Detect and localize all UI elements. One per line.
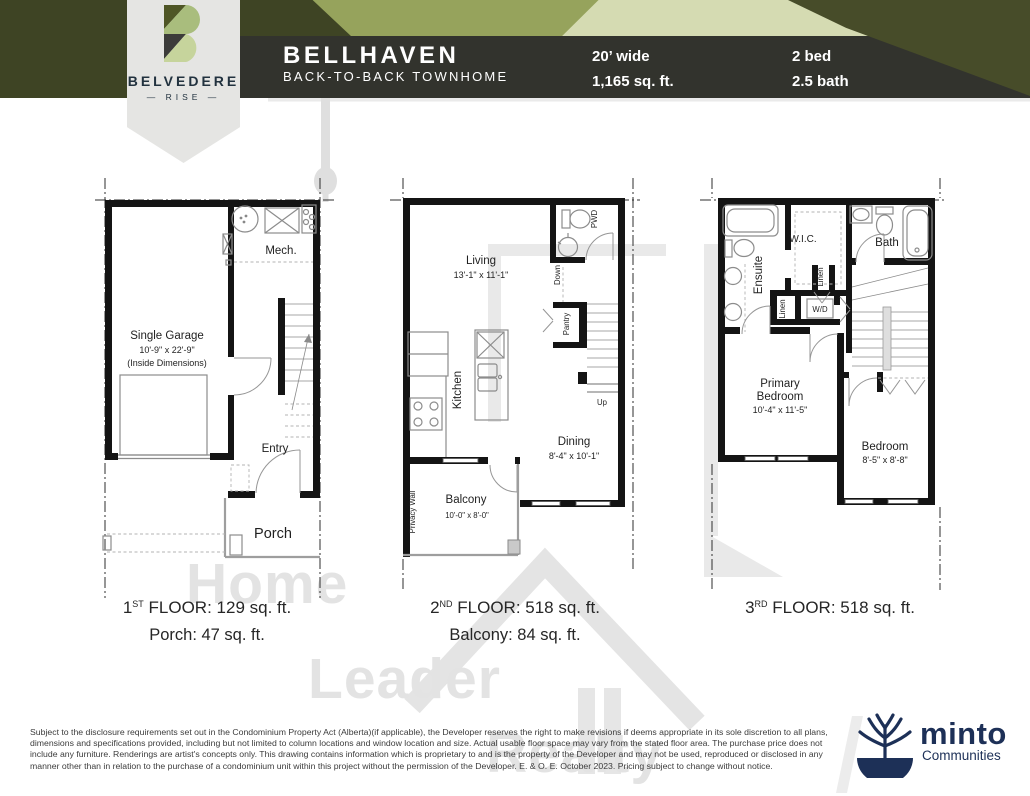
primary-bedroom-label-2: Bedroom — [757, 391, 804, 403]
kitchen-window — [443, 459, 478, 463]
bath-label: Bath — [875, 237, 899, 249]
pwd-door — [586, 233, 613, 260]
bath-fixtures — [850, 206, 932, 260]
ensuite-door — [742, 306, 770, 334]
garage-label: Single Garage — [130, 330, 204, 342]
living-dims: 13'-1" x 11'-1" — [454, 270, 509, 280]
minto-tree-icon — [853, 712, 917, 778]
bedroom-dims: 8'-5" x 8'-8" — [862, 455, 907, 465]
entry-closet — [231, 465, 249, 491]
ensuite-label: Ensuite — [753, 256, 765, 294]
balcony-dims: 10'-0" x 8'-0" — [445, 511, 489, 520]
minto-logo: minto Communities — [853, 712, 917, 783]
pantry-door — [543, 309, 553, 332]
floor1-area-label: 1ST FLOOR: 129 sq. ft. — [82, 598, 332, 618]
water-heater-icon — [232, 206, 258, 232]
linen-label-1: Linen — [816, 267, 825, 286]
garage-interior-door — [234, 358, 271, 395]
minto-name: minto — [920, 716, 1007, 752]
balcony-label: Balcony — [446, 494, 487, 506]
floor1-plan: Mech. Single Garage 10'-9" x 22'-9" (Ins… — [95, 172, 335, 602]
toilet-icon — [725, 240, 732, 257]
garage-dims: 10'-9" x 22'-9" — [139, 345, 194, 355]
bedroom-closet — [878, 378, 928, 394]
floor1-porch-label: Porch: 47 sq. ft. — [82, 626, 332, 645]
primary-door — [810, 334, 838, 362]
floor2-plan: Living 13'-1" x 11'-1" PWD Down Pantry K… — [390, 172, 640, 602]
floor3-area-label: 3RD FLOOR: 518 sq. ft. — [705, 598, 955, 618]
stairs-floor1 — [278, 298, 313, 437]
wd-label: W/D — [812, 305, 828, 314]
dining-dims: 8'-4" x 10'-1" — [549, 451, 599, 461]
primary-bedroom-label-1: Primary — [760, 378, 800, 390]
floor3-plan: Ensuite W.I.C. Bath Linen Linen W/D Prim… — [700, 172, 945, 602]
toilet-icon — [876, 207, 893, 214]
sink-icon — [725, 304, 742, 321]
sink-icon — [725, 268, 742, 285]
balcony-door — [490, 465, 517, 492]
entry-label: Entry — [262, 443, 289, 455]
floorplan-brochure: Home Leader Realty BELLHAVEN BACK-TO-BAC… — [0, 0, 1030, 796]
stair-arrow — [304, 334, 312, 343]
stair-rail — [883, 307, 891, 370]
porch-post — [230, 535, 242, 555]
up-label: Up — [597, 398, 608, 407]
balcony-outline — [403, 464, 520, 555]
mech-label: Mech. — [265, 245, 296, 257]
legal-disclaimer: Subject to the disclosure requirements s… — [30, 727, 832, 772]
front-door — [256, 450, 300, 493]
watermark-strip — [268, 98, 1030, 102]
driveway-lines — [107, 534, 225, 552]
stairs-floor2 — [587, 304, 618, 392]
floor2-balcony-label: Balcony: 84 sq. ft. — [390, 626, 640, 645]
watermark-text-leader: Leader — [308, 647, 501, 711]
sink-icon — [559, 238, 578, 257]
pwd-room — [558, 210, 613, 260]
privacy-wall-label: Privacy Wall — [408, 490, 417, 533]
floor2-area-label: 2ND FLOOR: 518 sq. ft. — [390, 598, 640, 618]
down-label: Down — [553, 265, 562, 285]
stairs-floor3 — [852, 268, 928, 370]
linen-label-2: Linen — [778, 299, 787, 318]
bedroom-door — [849, 378, 877, 406]
pantry-label: Pantry — [562, 313, 571, 336]
kitchen-label: Kitchen — [452, 371, 464, 409]
porch-label: Porch — [254, 526, 292, 542]
dining-label: Dining — [558, 436, 591, 448]
garage-note: (Inside Dimensions) — [127, 358, 207, 368]
sink-double-icon — [478, 364, 497, 377]
sink-icon — [853, 209, 869, 221]
living-label: Living — [466, 255, 496, 267]
minto-tagline: Communities — [922, 748, 1001, 763]
pwd-label: PWD — [590, 210, 599, 229]
primary-bedroom-dims: 10'-4" x 11'-5" — [753, 405, 808, 415]
toilet-icon — [562, 210, 570, 228]
bedroom-label: Bedroom — [862, 441, 909, 453]
parking-stall — [120, 375, 207, 455]
balcony-post — [508, 540, 520, 554]
wic-label: W.I.C. — [789, 234, 816, 245]
